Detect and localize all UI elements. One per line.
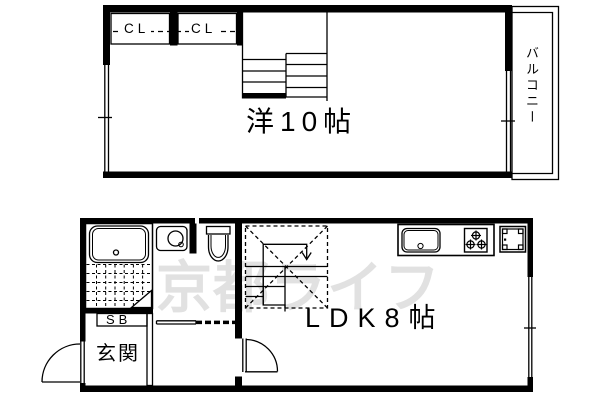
stairs-upper xyxy=(243,13,328,102)
floorplan-drawing xyxy=(0,0,600,400)
bathroom xyxy=(86,224,153,309)
kitchen-sink xyxy=(402,229,440,253)
genkan-wall xyxy=(147,314,153,386)
bathtub xyxy=(90,226,149,263)
entrance-door xyxy=(42,342,84,384)
balcony-label: バルコニー xyxy=(525,46,538,126)
window-right-upper xyxy=(501,71,515,172)
stairs-lower xyxy=(246,226,328,312)
shoebox-label: SB xyxy=(106,313,131,326)
upper-walls xyxy=(103,5,512,178)
ldk-door xyxy=(243,339,278,373)
kitchen xyxy=(398,225,526,256)
washbasin xyxy=(157,227,188,251)
toilet xyxy=(207,227,231,262)
entrance-label: 玄関 xyxy=(96,344,140,364)
stove xyxy=(465,229,488,253)
sliding-door xyxy=(157,321,237,324)
window-right-lower xyxy=(524,277,536,377)
bathroom-door xyxy=(132,291,152,308)
closet-label-1: CL xyxy=(122,22,151,36)
lower-room-label: LDK8帖 xyxy=(305,305,445,332)
upper-floor-plan xyxy=(98,5,559,180)
closet-label-2: CL xyxy=(189,22,218,36)
floorplan-page: 京都ライフ xyxy=(0,0,600,400)
washer-pan xyxy=(500,227,526,253)
upper-room-label: 洋10帖 xyxy=(246,108,357,136)
top-wall-gap xyxy=(195,218,199,224)
window-left-upper xyxy=(98,64,112,172)
lower-floor-plan xyxy=(42,218,536,392)
